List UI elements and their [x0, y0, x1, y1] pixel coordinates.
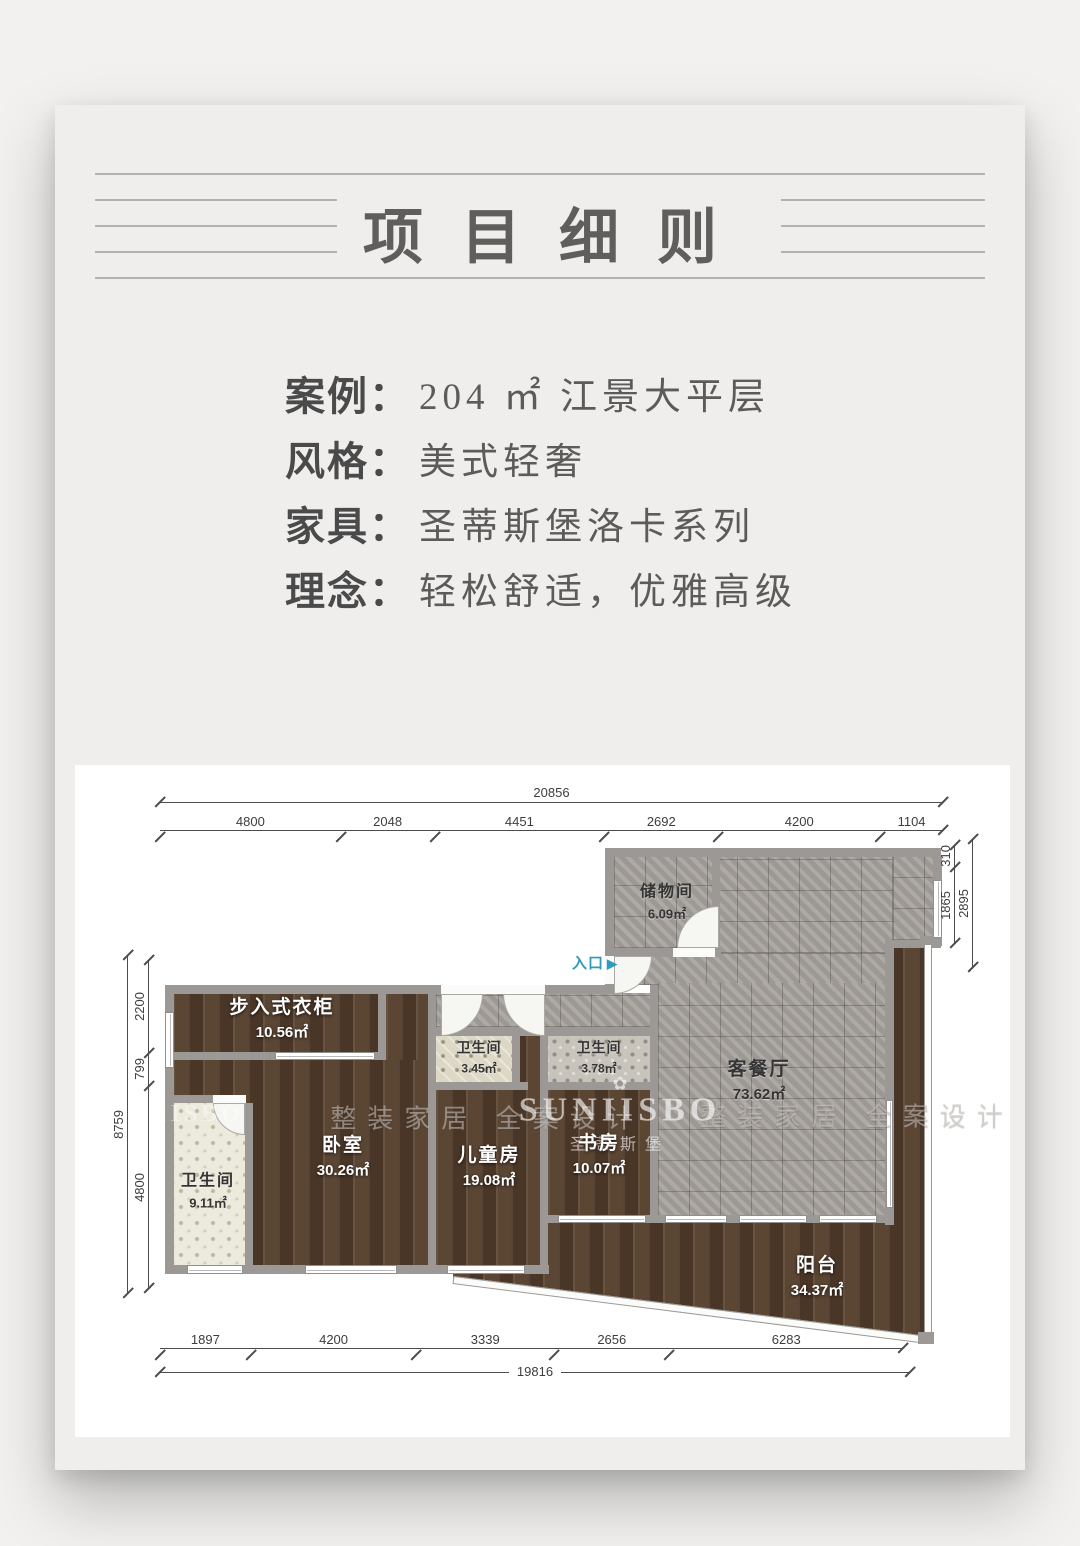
- dimension-segment: 1865: [937, 867, 954, 943]
- door-opening: [441, 985, 545, 994]
- dimension-segment: 799: [133, 1053, 148, 1087]
- railing-post: [918, 1332, 934, 1344]
- room-floor-bedroom-nook: [386, 993, 428, 1060]
- decor-line: [95, 173, 985, 175]
- dimension-value: 6283: [772, 1333, 801, 1346]
- dimension-segment: 4200: [251, 1331, 417, 1348]
- room-label-bath-right: 卫生间3.78㎡: [577, 1038, 622, 1077]
- dimension-segment: 4800: [133, 1086, 148, 1288]
- dim-bottom-total: 19816: [160, 1359, 910, 1373]
- dimension-value: 4800: [133, 1173, 146, 1202]
- dimension-value: 2048: [373, 815, 402, 828]
- window: [819, 1215, 877, 1223]
- dimension-value: 1897: [191, 1333, 220, 1346]
- info-label: 家具：: [285, 494, 411, 552]
- window: [305, 1265, 397, 1274]
- window: [187, 1265, 243, 1274]
- page-title: 项目细则: [55, 189, 1025, 276]
- dim-left-segments: 22007994800: [133, 960, 149, 1288]
- wall: [605, 857, 614, 953]
- wall: [540, 1036, 548, 1274]
- floor-plan: SUNIISBO 整装家居 全案设计 整装家居 全案设计 ✿ SUNIISBO …: [75, 765, 1010, 1437]
- dimension-value: 4800: [236, 815, 265, 828]
- wall: [605, 848, 941, 857]
- room-label-study: 书房10.07㎡: [573, 1128, 626, 1178]
- dimension-segment: 1897: [160, 1331, 251, 1348]
- info-row-concept: 理念： 轻松舒适，优雅高级: [285, 555, 797, 620]
- room-label-storage: 储物间6.09㎡: [640, 878, 694, 923]
- door-arc: [614, 956, 652, 994]
- info-row-style: 风格： 美式轻奢: [285, 425, 797, 490]
- door-opening: [213, 1095, 246, 1103]
- dimension-segment: 1104: [880, 813, 943, 830]
- dimension-segment: 4200: [718, 813, 880, 830]
- project-card: 项目细则 案例： 204 ㎡ 江景大平层 风格： 美式轻奢 家具： 圣蒂斯堡洛卡…: [55, 105, 1025, 1470]
- dim-bottom-segments: 18974200333926566283: [160, 1331, 903, 1349]
- window: [739, 1215, 807, 1223]
- dimension-segment: 2200: [133, 960, 148, 1053]
- dimension-value: 3339: [471, 1333, 500, 1346]
- info-value: 轻松舒适，优雅高级: [419, 561, 797, 615]
- room-label-bath-left: 卫生间9.11㎡: [181, 1167, 235, 1212]
- window: [447, 1265, 525, 1274]
- decor-line: [95, 277, 985, 279]
- info-value: 圣蒂斯堡洛卡系列: [419, 496, 755, 550]
- dim-left-total: 8759: [115, 955, 128, 1293]
- wall: [512, 1036, 520, 1082]
- dimension-segment: 4451: [435, 813, 605, 830]
- door-opening: [673, 948, 715, 957]
- room-label-bath-mid: 卫生间3.45㎡: [457, 1038, 502, 1077]
- wall: [548, 1082, 658, 1090]
- info-label: 案例：: [285, 364, 411, 422]
- railing-post: [920, 936, 934, 945]
- wall: [378, 994, 386, 1060]
- room-label-living: 客餐厅73.62㎡: [727, 1054, 790, 1104]
- wall: [650, 985, 658, 1223]
- info-value: 美式轻奢: [419, 431, 587, 485]
- window: [886, 1100, 893, 1208]
- dim-top-segments: 480020484451269242001104: [160, 813, 943, 831]
- wall: [436, 1082, 528, 1090]
- room-label-kids: 儿童房19.08㎡: [457, 1140, 520, 1190]
- dimension-value: 4200: [319, 1333, 348, 1346]
- info-row-case: 案例： 204 ㎡ 江景大平层: [285, 360, 797, 425]
- dimension-segment: 3339: [416, 1331, 554, 1348]
- poster-page: 项目细则 案例： 204 ㎡ 江景大平层 风格： 美式轻奢 家具： 圣蒂斯堡洛卡…: [0, 0, 1080, 1546]
- wall: [436, 1027, 658, 1036]
- dimension-segment: 310: [937, 845, 954, 867]
- info-label: 风格：: [285, 429, 411, 487]
- dimension-segment: 2048: [341, 813, 435, 830]
- dimension-value: 2692: [647, 815, 676, 828]
- room-floor-corridor: [613, 953, 885, 985]
- window: [665, 1215, 727, 1223]
- title-block: 项目细则: [55, 105, 1025, 335]
- wall: [428, 993, 436, 1274]
- wall: [245, 1103, 253, 1274]
- dim-right-segments: 3101865: [937, 845, 955, 943]
- dimension-segment: 2656: [554, 1331, 669, 1348]
- dimension-value: 1865: [939, 891, 952, 920]
- dimension-segment: 6283: [669, 1331, 903, 1348]
- dimension-value: 1104: [898, 815, 926, 828]
- sliding-door: [275, 1052, 375, 1060]
- dimension-value: 2656: [597, 1333, 626, 1346]
- info-row-furniture: 家具： 圣蒂斯堡洛卡系列: [285, 490, 797, 555]
- dim-right-total: 2895: [959, 839, 973, 967]
- room-label-bedroom: 卧室30.26㎡: [317, 1130, 370, 1180]
- dim-top-total: 20856: [160, 781, 943, 803]
- room-label-balcony: 阳台34.37㎡: [791, 1250, 844, 1300]
- window: [558, 1215, 646, 1223]
- dimension-value: 2200: [133, 992, 146, 1021]
- dimension-segment: 4800: [160, 813, 341, 830]
- dimension-value: 4451: [505, 815, 534, 828]
- entrance-arrow-icon: ▶: [607, 956, 618, 972]
- dimension-segment: 2692: [604, 813, 718, 830]
- project-info: 案例： 204 ㎡ 江景大平层 风格： 美式轻奢 家具： 圣蒂斯堡洛卡系列 理念…: [285, 360, 797, 620]
- info-value: 204 ㎡ 江景大平层: [419, 366, 770, 420]
- balcony-railing: [924, 943, 932, 1340]
- dimension-value: 4200: [785, 815, 814, 828]
- dimension-value: 310: [939, 845, 952, 867]
- entrance-label: 入口▶: [572, 952, 618, 973]
- dimension-value: 799: [133, 1058, 146, 1080]
- info-label: 理念：: [285, 559, 411, 617]
- room-label-closet: 步入式衣柜10.56㎡: [229, 992, 334, 1042]
